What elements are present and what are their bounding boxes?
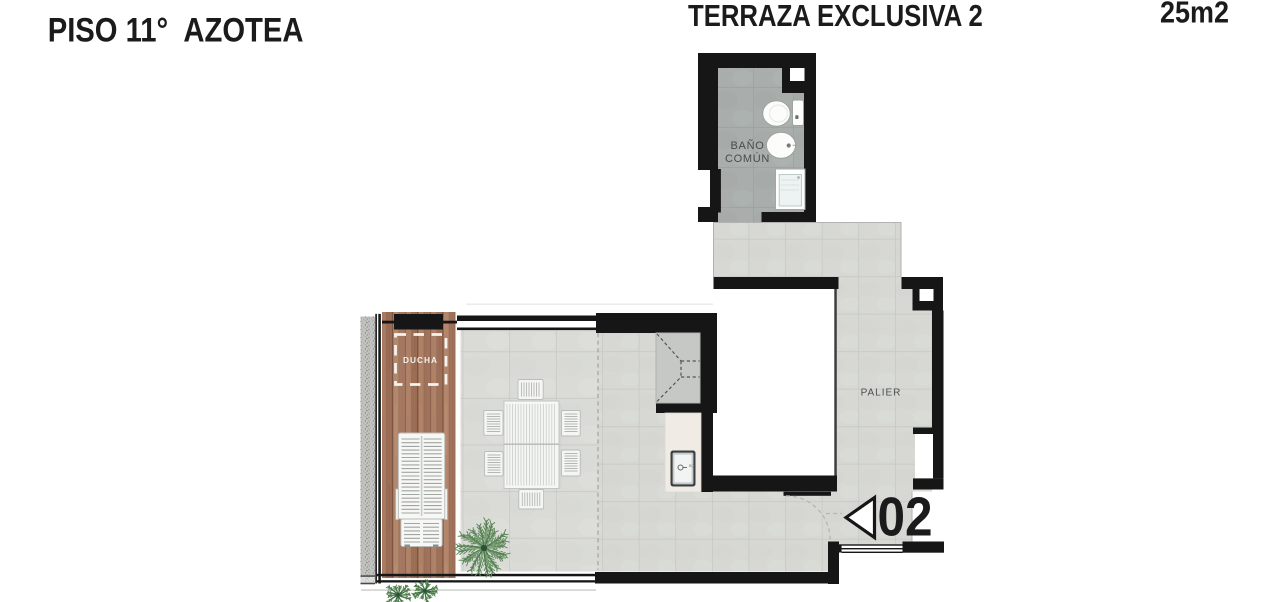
svg-text:25m2: 25m2: [1160, 0, 1229, 30]
svg-text:PISO 11° AZOTEA: PISO 11° AZOTEA: [48, 10, 304, 49]
svg-text:BQ: BQ: [689, 464, 694, 468]
svg-text:PALIER: PALIER: [861, 388, 902, 399]
svg-text:TERRAZA EXCLUSIVA 2: TERRAZA EXCLUSIVA 2: [688, 0, 983, 34]
svg-text:02: 02: [878, 487, 933, 548]
svg-text:BAÑO: BAÑO: [731, 139, 765, 152]
svg-text:DUCHA: DUCHA: [403, 355, 438, 365]
svg-text:COMÚN: COMÚN: [725, 152, 770, 165]
